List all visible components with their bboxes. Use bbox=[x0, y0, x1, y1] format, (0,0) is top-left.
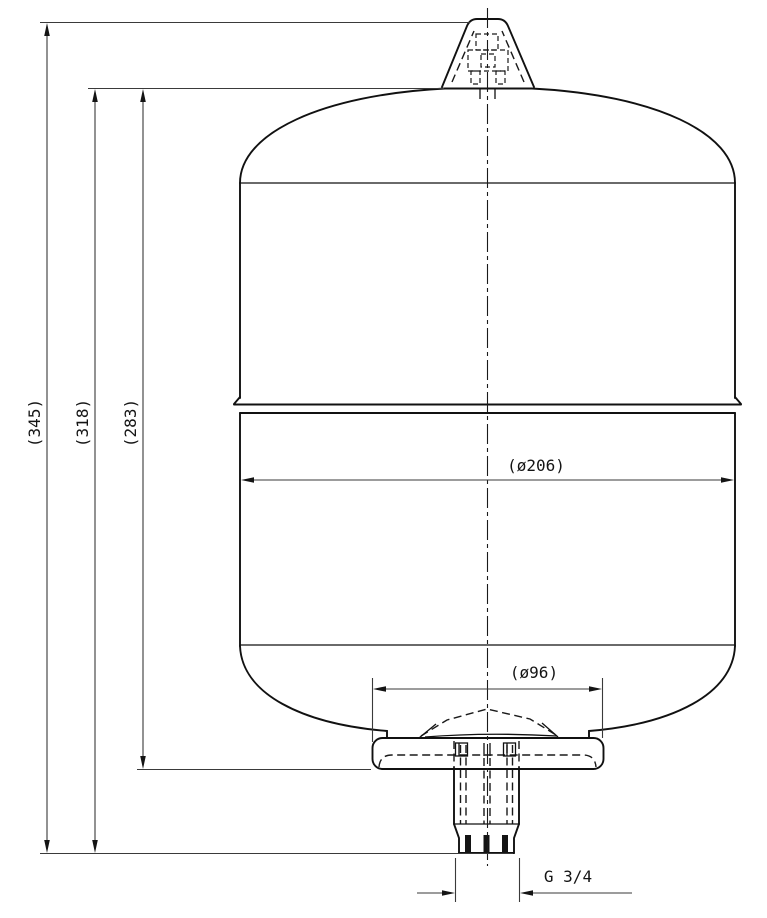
arrowhead-g34-right bbox=[520, 890, 533, 896]
mid-seam-lip-left bbox=[234, 397, 240, 404]
arrowhead-g34-left bbox=[442, 890, 455, 896]
vessel-bottom-dome-left bbox=[240, 646, 387, 738]
dimension-thread: G 3/4 bbox=[417, 858, 632, 902]
dimension-overall-height: (345) bbox=[25, 23, 513, 854]
dim-label-outer-diameter: (ø206) bbox=[507, 456, 565, 475]
thread-section-bar-2 bbox=[484, 835, 490, 853]
arrowhead-96-right bbox=[589, 686, 602, 692]
technical-drawing-canvas: (345) (318) (283) (ø206) (ø96) bbox=[0, 0, 767, 918]
arrowhead-283-top bbox=[140, 89, 146, 102]
arrowhead-283-bottom bbox=[140, 756, 146, 769]
arrowhead-206-left bbox=[241, 477, 254, 483]
thread-taper-left bbox=[454, 824, 459, 853]
arrowhead-345-top bbox=[44, 23, 50, 36]
arrowhead-318-bottom bbox=[92, 840, 98, 853]
thread-section-bar-1 bbox=[465, 835, 471, 853]
stub-nub-right bbox=[504, 743, 516, 756]
diaphragm-seat-line bbox=[425, 734, 557, 737]
dim-label-height-no-valve: (318) bbox=[73, 399, 92, 447]
arrowhead-318-top bbox=[92, 89, 98, 102]
arrowhead-96-left bbox=[373, 686, 386, 692]
diaphragm-hidden-dome bbox=[421, 709, 556, 736]
arrowhead-345-bottom bbox=[44, 840, 50, 853]
thread-section-bar-3 bbox=[502, 835, 508, 853]
threaded-connection bbox=[454, 741, 519, 853]
arrowhead-206-right bbox=[721, 477, 734, 483]
thread-taper-right bbox=[514, 824, 519, 853]
vessel-bottom-dome-right bbox=[589, 646, 735, 738]
technical-drawing-page: (345) (318) (283) (ø206) (ø96) bbox=[0, 0, 767, 918]
dim-label-overall-height: (345) bbox=[25, 399, 44, 447]
dim-label-base-diameter: (ø96) bbox=[510, 663, 558, 682]
dim-label-body-height: (283) bbox=[121, 399, 140, 447]
valve-core-leg-left bbox=[471, 71, 480, 84]
dim-label-thread: G 3/4 bbox=[544, 867, 592, 886]
mid-seam-lip-right bbox=[735, 397, 741, 404]
valve-core-leg-right bbox=[496, 71, 505, 84]
